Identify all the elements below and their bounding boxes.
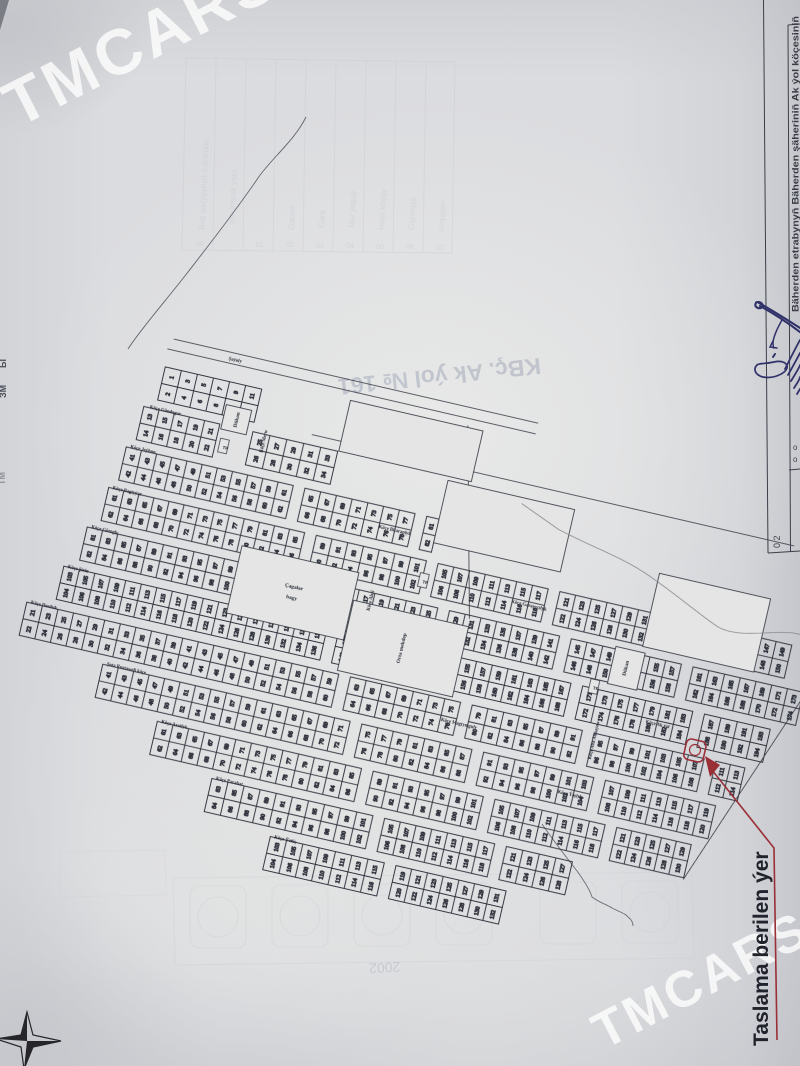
svg-text:174: 174 bbox=[787, 711, 795, 721]
svg-text:112: 112 bbox=[431, 852, 439, 862]
svg-text:53: 53 bbox=[221, 475, 228, 482]
svg-text:104: 104 bbox=[63, 588, 71, 598]
svg-text:112: 112 bbox=[541, 833, 549, 843]
svg-text:79: 79 bbox=[476, 712, 483, 719]
svg-text:32: 32 bbox=[304, 467, 311, 474]
svg-text:54: 54 bbox=[195, 709, 202, 716]
svg-text:22: 22 bbox=[26, 626, 33, 633]
svg-text:121: 121 bbox=[563, 597, 571, 607]
svg-text:65: 65 bbox=[292, 714, 299, 721]
svg-text:5: 5 bbox=[201, 383, 208, 387]
svg-text:106: 106 bbox=[286, 863, 294, 873]
svg-text:Hoşallan: Hoşallan bbox=[437, 201, 448, 233]
svg-text:114: 114 bbox=[141, 606, 149, 616]
svg-text:47: 47 bbox=[233, 656, 240, 663]
svg-text:103: 103 bbox=[660, 753, 668, 763]
svg-text:46: 46 bbox=[213, 669, 220, 676]
svg-text:93: 93 bbox=[408, 786, 415, 793]
svg-text:117: 117 bbox=[592, 827, 600, 837]
svg-text:94: 94 bbox=[499, 780, 506, 787]
svg-text:47: 47 bbox=[175, 465, 182, 472]
svg-text:60: 60 bbox=[241, 720, 248, 727]
svg-text:31: 31 bbox=[308, 451, 315, 458]
svg-text:99: 99 bbox=[550, 774, 557, 781]
svg-text:81: 81 bbox=[262, 529, 269, 536]
svg-text:127: 127 bbox=[610, 608, 618, 618]
svg-text:92: 92 bbox=[276, 817, 283, 824]
svg-text:Bäherden etrabynyň Bäherden şä: Bäherden etrabynyň Bäherden şäheriniň Ak… bbox=[791, 16, 800, 312]
svg-text:121: 121 bbox=[415, 875, 423, 885]
svg-text:o: o bbox=[793, 443, 798, 452]
svg-text:56: 56 bbox=[292, 687, 299, 694]
svg-text:126: 126 bbox=[234, 628, 242, 638]
svg-text:167: 167 bbox=[558, 685, 566, 695]
svg-text:141: 141 bbox=[547, 638, 555, 648]
svg-text:78: 78 bbox=[377, 751, 384, 758]
svg-text:7: 7 bbox=[217, 387, 224, 391]
svg-text:115: 115 bbox=[160, 593, 168, 603]
svg-text:84: 84 bbox=[330, 785, 337, 792]
svg-text:4: 4 bbox=[181, 396, 188, 400]
svg-text:48: 48 bbox=[229, 673, 236, 680]
svg-text:59: 59 bbox=[327, 678, 334, 685]
svg-text:110: 110 bbox=[620, 806, 628, 816]
svg-text:120: 120 bbox=[699, 824, 707, 834]
svg-text:51: 51 bbox=[264, 663, 271, 670]
svg-text:129: 129 bbox=[679, 847, 687, 857]
svg-text:26: 26 bbox=[253, 456, 260, 463]
svg-text:73: 73 bbox=[202, 515, 209, 522]
svg-text:63: 63 bbox=[276, 711, 283, 718]
svg-text:161: 161 bbox=[696, 673, 704, 683]
svg-text:18: 18 bbox=[174, 437, 181, 444]
svg-text:131: 131 bbox=[493, 893, 501, 903]
svg-text:43: 43 bbox=[122, 675, 129, 682]
svg-text:45: 45 bbox=[217, 653, 224, 660]
svg-text:121: 121 bbox=[206, 604, 214, 614]
svg-text:85: 85 bbox=[444, 749, 451, 756]
svg-text:190: 190 bbox=[721, 740, 729, 750]
svg-text:88: 88 bbox=[456, 770, 463, 777]
svg-text:83: 83 bbox=[216, 786, 223, 793]
svg-text:65: 65 bbox=[370, 688, 377, 695]
svg-text:125: 125 bbox=[594, 605, 602, 615]
svg-text:124: 124 bbox=[218, 624, 226, 634]
svg-text:26: 26 bbox=[57, 633, 64, 640]
svg-text:68: 68 bbox=[382, 708, 389, 715]
svg-text:168: 168 bbox=[554, 702, 562, 712]
svg-text:Bag gazygynyň ö.ömrüne: Bag gazygynyň ö.ömrüne bbox=[197, 138, 211, 230]
svg-text:72: 72 bbox=[413, 715, 420, 722]
svg-text:107: 107 bbox=[457, 573, 465, 583]
svg-text:162: 162 bbox=[507, 691, 515, 701]
svg-text:108: 108 bbox=[302, 866, 310, 876]
svg-text:72: 72 bbox=[235, 763, 242, 770]
svg-text:164: 164 bbox=[523, 695, 531, 705]
svg-text:82: 82 bbox=[409, 759, 416, 766]
svg-text:104: 104 bbox=[656, 770, 664, 780]
svg-text:69: 69 bbox=[340, 503, 347, 510]
svg-text:116: 116 bbox=[668, 817, 676, 827]
svg-text:127: 127 bbox=[559, 864, 567, 874]
svg-text:07: 07 bbox=[436, 245, 444, 252]
svg-text:6: 6 bbox=[198, 400, 205, 404]
svg-text:60: 60 bbox=[262, 502, 269, 509]
svg-text:165: 165 bbox=[543, 682, 551, 692]
svg-text:98: 98 bbox=[324, 828, 331, 835]
svg-text:100: 100 bbox=[394, 576, 402, 586]
svg-text:34: 34 bbox=[120, 648, 127, 655]
svg-text:68: 68 bbox=[320, 516, 327, 523]
svg-text:129: 129 bbox=[626, 612, 634, 622]
svg-text:68: 68 bbox=[153, 522, 160, 529]
svg-text:35: 35 bbox=[139, 635, 146, 642]
svg-text:75: 75 bbox=[271, 754, 278, 761]
svg-text:168: 168 bbox=[740, 700, 748, 710]
svg-text:94: 94 bbox=[178, 572, 185, 579]
svg-text:183: 183 bbox=[680, 713, 688, 723]
svg-text:112: 112 bbox=[125, 603, 133, 613]
svg-text:58: 58 bbox=[307, 691, 314, 698]
svg-text:77: 77 bbox=[381, 735, 388, 742]
svg-text:105: 105 bbox=[498, 805, 506, 815]
svg-text:83: 83 bbox=[428, 746, 435, 753]
svg-text:90: 90 bbox=[373, 795, 380, 802]
svg-text:80: 80 bbox=[393, 755, 400, 762]
svg-text:Şaýoly: Şaýoly bbox=[228, 357, 243, 365]
svg-text:41: 41 bbox=[129, 454, 136, 461]
svg-text:77: 77 bbox=[403, 517, 410, 524]
svg-text:Köçe Jeýhun: Köçe Jeýhun bbox=[130, 445, 157, 456]
svg-text:45: 45 bbox=[160, 461, 167, 468]
svg-text:mmümyrat ýolu: mmümyrat ýolu bbox=[227, 170, 239, 225]
svg-text:135: 135 bbox=[500, 627, 508, 637]
svg-text:113: 113 bbox=[144, 590, 152, 600]
svg-text:95: 95 bbox=[367, 553, 374, 560]
svg-text:31: 31 bbox=[108, 627, 115, 634]
svg-text:Gurmuşa: Gurmuşa bbox=[407, 196, 418, 230]
svg-text:20: 20 bbox=[189, 441, 196, 448]
svg-text:0 2: 0 2 bbox=[772, 535, 782, 548]
svg-text:131: 131 bbox=[468, 620, 476, 630]
svg-text:84: 84 bbox=[424, 762, 431, 769]
svg-text:66: 66 bbox=[138, 518, 145, 525]
svg-text:101: 101 bbox=[471, 799, 479, 809]
svg-text:111: 111 bbox=[488, 580, 496, 590]
svg-text:105: 105 bbox=[82, 575, 90, 585]
svg-text:86: 86 bbox=[228, 806, 235, 813]
svg-text:28: 28 bbox=[270, 459, 277, 466]
svg-text:114: 114 bbox=[557, 836, 565, 846]
svg-text:29: 29 bbox=[92, 624, 99, 631]
svg-text:93: 93 bbox=[503, 763, 510, 770]
svg-text:81: 81 bbox=[412, 742, 419, 749]
svg-text:46: 46 bbox=[133, 695, 140, 702]
svg-text:116: 116 bbox=[156, 610, 164, 620]
svg-text:90: 90 bbox=[551, 747, 558, 754]
svg-text:123: 123 bbox=[579, 601, 587, 611]
svg-text:97: 97 bbox=[440, 793, 447, 800]
svg-text:176: 176 bbox=[613, 716, 621, 726]
svg-text:65: 65 bbox=[192, 736, 199, 743]
svg-text:33: 33 bbox=[124, 631, 131, 638]
svg-text:173: 173 bbox=[791, 694, 799, 704]
svg-text:63: 63 bbox=[176, 732, 183, 739]
svg-text:134: 134 bbox=[480, 640, 488, 650]
svg-text:97: 97 bbox=[328, 812, 335, 819]
svg-text:29: 29 bbox=[291, 447, 298, 454]
svg-text:15: 15 bbox=[162, 417, 169, 424]
svg-text:171: 171 bbox=[775, 691, 783, 701]
svg-text:68: 68 bbox=[204, 756, 211, 763]
svg-text:191: 191 bbox=[741, 727, 749, 737]
svg-text:60: 60 bbox=[323, 694, 330, 701]
svg-text:124: 124 bbox=[523, 873, 531, 883]
svg-text:81: 81 bbox=[318, 765, 325, 772]
svg-text:76: 76 bbox=[361, 748, 368, 755]
svg-text:64: 64 bbox=[173, 749, 180, 756]
svg-text:134: 134 bbox=[295, 642, 303, 652]
svg-text:95: 95 bbox=[598, 740, 605, 747]
svg-text:132: 132 bbox=[280, 639, 288, 649]
svg-text:102: 102 bbox=[467, 815, 475, 825]
svg-text:78: 78 bbox=[229, 539, 236, 546]
svg-text:113: 113 bbox=[733, 770, 741, 780]
svg-text:39: 39 bbox=[171, 642, 178, 649]
svg-text:109: 109 bbox=[530, 812, 538, 822]
svg-text:109: 109 bbox=[113, 583, 121, 593]
svg-text:1: 1 bbox=[169, 376, 176, 380]
svg-text:70: 70 bbox=[168, 525, 175, 532]
svg-text:36: 36 bbox=[136, 651, 143, 658]
svg-text:71: 71 bbox=[417, 699, 424, 706]
svg-text:69: 69 bbox=[401, 695, 408, 702]
svg-text:101: 101 bbox=[644, 750, 652, 760]
svg-text:120: 120 bbox=[395, 888, 403, 898]
svg-text:157: 157 bbox=[480, 667, 488, 677]
svg-text:163: 163 bbox=[527, 678, 535, 688]
svg-text:85: 85 bbox=[121, 541, 128, 548]
svg-text:70: 70 bbox=[397, 712, 404, 719]
svg-text:46: 46 bbox=[156, 478, 163, 485]
svg-text:86: 86 bbox=[519, 740, 526, 747]
svg-text:107: 107 bbox=[403, 828, 411, 838]
svg-text:53: 53 bbox=[199, 693, 206, 700]
svg-text:104: 104 bbox=[270, 859, 278, 869]
svg-text:112: 112 bbox=[636, 810, 644, 820]
svg-text:o: o bbox=[793, 455, 798, 464]
svg-text:149: 149 bbox=[779, 647, 787, 657]
svg-text:45: 45 bbox=[137, 679, 144, 686]
svg-text:89: 89 bbox=[151, 548, 158, 555]
svg-text:158: 158 bbox=[665, 683, 673, 693]
svg-text:42: 42 bbox=[182, 662, 189, 669]
svg-text:75: 75 bbox=[365, 731, 372, 738]
svg-text:16: 16 bbox=[158, 434, 165, 441]
svg-text:163: 163 bbox=[712, 676, 720, 686]
svg-text:66: 66 bbox=[188, 752, 195, 759]
svg-text:102: 102 bbox=[356, 834, 364, 844]
svg-text:91: 91 bbox=[392, 782, 399, 789]
svg-text:81: 81 bbox=[491, 716, 498, 723]
svg-text:76: 76 bbox=[213, 535, 220, 542]
svg-text:113: 113 bbox=[504, 584, 512, 594]
svg-text:88: 88 bbox=[535, 743, 542, 750]
svg-text:170: 170 bbox=[755, 704, 763, 714]
svg-text:98: 98 bbox=[379, 574, 386, 581]
svg-text:67: 67 bbox=[324, 499, 331, 506]
svg-text:87: 87 bbox=[248, 793, 255, 800]
svg-text:64: 64 bbox=[123, 515, 130, 522]
svg-text:65: 65 bbox=[308, 495, 315, 502]
svg-text:63: 63 bbox=[354, 684, 361, 691]
svg-text:123: 123 bbox=[634, 837, 642, 847]
svg-text:98: 98 bbox=[609, 761, 616, 768]
svg-text:98: 98 bbox=[436, 810, 443, 817]
svg-text:110: 110 bbox=[415, 848, 423, 858]
svg-text:50: 50 bbox=[186, 485, 193, 492]
svg-text:112: 112 bbox=[485, 597, 493, 607]
svg-text:106: 106 bbox=[384, 841, 392, 851]
svg-text:86: 86 bbox=[117, 558, 124, 565]
svg-text:72: 72 bbox=[334, 742, 341, 749]
svg-text:06: 06 bbox=[406, 244, 414, 251]
svg-text:174: 174 bbox=[598, 712, 606, 722]
svg-text:55: 55 bbox=[236, 479, 243, 486]
svg-text:57: 57 bbox=[251, 482, 258, 489]
svg-text:125: 125 bbox=[649, 840, 657, 850]
svg-text:111: 111 bbox=[435, 835, 443, 845]
svg-text:77: 77 bbox=[232, 522, 239, 529]
svg-text:49: 49 bbox=[190, 468, 197, 475]
svg-text:126: 126 bbox=[591, 621, 599, 631]
svg-text:111: 111 bbox=[640, 793, 648, 803]
svg-text:Gatam: Gatam bbox=[287, 205, 297, 230]
svg-text:179: 179 bbox=[649, 706, 657, 716]
svg-text:98: 98 bbox=[530, 787, 537, 794]
svg-text:61: 61 bbox=[281, 489, 288, 496]
svg-text:105: 105 bbox=[290, 846, 298, 856]
svg-text:51: 51 bbox=[183, 689, 190, 696]
svg-text:108: 108 bbox=[605, 803, 613, 813]
svg-text:61: 61 bbox=[161, 729, 168, 736]
svg-text:105: 105 bbox=[676, 757, 684, 767]
svg-text:69: 69 bbox=[224, 743, 231, 750]
svg-text:100: 100 bbox=[451, 812, 459, 822]
svg-text:110: 110 bbox=[319, 870, 327, 880]
svg-text:62: 62 bbox=[108, 511, 115, 518]
svg-text:150: 150 bbox=[775, 664, 783, 674]
svg-text:128: 128 bbox=[555, 880, 563, 890]
svg-text:92: 92 bbox=[389, 799, 396, 806]
svg-text:79: 79 bbox=[302, 761, 309, 768]
svg-text:75: 75 bbox=[448, 706, 455, 713]
svg-text:90: 90 bbox=[260, 813, 267, 820]
svg-text:75: 75 bbox=[387, 514, 394, 521]
svg-text:175: 175 bbox=[617, 699, 625, 709]
svg-text:115: 115 bbox=[520, 587, 528, 597]
svg-text:189: 189 bbox=[724, 724, 732, 734]
svg-text:115: 115 bbox=[577, 823, 585, 833]
svg-text:128: 128 bbox=[249, 631, 257, 641]
svg-text:24: 24 bbox=[42, 630, 49, 637]
svg-text:44: 44 bbox=[198, 666, 205, 673]
svg-text:105: 105 bbox=[388, 824, 396, 834]
svg-text:108: 108 bbox=[400, 844, 408, 854]
svg-text:99: 99 bbox=[344, 816, 351, 823]
svg-text:111: 111 bbox=[545, 816, 553, 826]
svg-text:62: 62 bbox=[257, 724, 264, 731]
svg-text:96: 96 bbox=[420, 806, 427, 813]
svg-text:74: 74 bbox=[429, 719, 436, 726]
svg-text:62: 62 bbox=[157, 745, 164, 752]
svg-text:164: 164 bbox=[708, 693, 716, 703]
svg-text:71: 71 bbox=[239, 747, 246, 754]
svg-text:66: 66 bbox=[288, 731, 295, 738]
svg-text:82: 82 bbox=[314, 781, 321, 788]
svg-text:136: 136 bbox=[311, 646, 319, 656]
svg-text:184: 184 bbox=[676, 730, 684, 740]
svg-text:109: 109 bbox=[473, 576, 481, 586]
svg-text:99: 99 bbox=[398, 561, 405, 568]
svg-text:118: 118 bbox=[683, 821, 691, 831]
svg-text:05: 05 bbox=[376, 244, 384, 251]
svg-text:172: 172 bbox=[771, 707, 779, 717]
svg-text:115: 115 bbox=[671, 801, 679, 811]
svg-text:118: 118 bbox=[171, 614, 179, 624]
svg-text:95: 95 bbox=[312, 808, 319, 815]
svg-text:148: 148 bbox=[586, 665, 594, 675]
svg-text:193: 193 bbox=[757, 731, 765, 741]
svg-text:96: 96 bbox=[515, 783, 522, 790]
svg-text:92: 92 bbox=[566, 751, 573, 758]
svg-text:158: 158 bbox=[476, 684, 484, 694]
svg-text:91: 91 bbox=[570, 734, 577, 741]
svg-text:2002: 2002 bbox=[369, 959, 401, 977]
svg-text:47: 47 bbox=[152, 682, 159, 689]
svg-text:177: 177 bbox=[633, 703, 641, 713]
svg-text:100: 100 bbox=[625, 763, 633, 773]
svg-text:02: 02 bbox=[286, 242, 294, 249]
svg-text:61: 61 bbox=[261, 707, 268, 714]
svg-text:161: 161 bbox=[511, 674, 519, 684]
svg-text:113: 113 bbox=[656, 797, 664, 807]
svg-text:91: 91 bbox=[487, 759, 494, 766]
svg-text:120: 120 bbox=[187, 617, 195, 627]
svg-text:111: 111 bbox=[718, 767, 726, 777]
svg-text:122: 122 bbox=[559, 614, 567, 624]
svg-text:04: 04 bbox=[346, 243, 354, 250]
svg-text:52: 52 bbox=[260, 680, 267, 687]
svg-text:13: 13 bbox=[147, 414, 154, 421]
svg-text:130: 130 bbox=[265, 635, 273, 645]
svg-text:71: 71 bbox=[187, 512, 194, 519]
svg-text:72: 72 bbox=[183, 529, 190, 536]
svg-text:83: 83 bbox=[278, 533, 285, 540]
svg-text:118: 118 bbox=[589, 844, 597, 854]
svg-text:108: 108 bbox=[688, 777, 696, 787]
svg-text:122: 122 bbox=[411, 891, 419, 901]
svg-text:111: 111 bbox=[339, 858, 347, 868]
svg-text:128: 128 bbox=[660, 860, 668, 870]
svg-text:109: 109 bbox=[419, 831, 427, 841]
svg-text:74: 74 bbox=[251, 767, 258, 774]
svg-text:156: 156 bbox=[649, 679, 657, 689]
svg-text:89: 89 bbox=[377, 778, 384, 785]
svg-text:100: 100 bbox=[546, 789, 554, 799]
svg-text:106: 106 bbox=[437, 586, 445, 596]
svg-text:105: 105 bbox=[441, 569, 449, 579]
